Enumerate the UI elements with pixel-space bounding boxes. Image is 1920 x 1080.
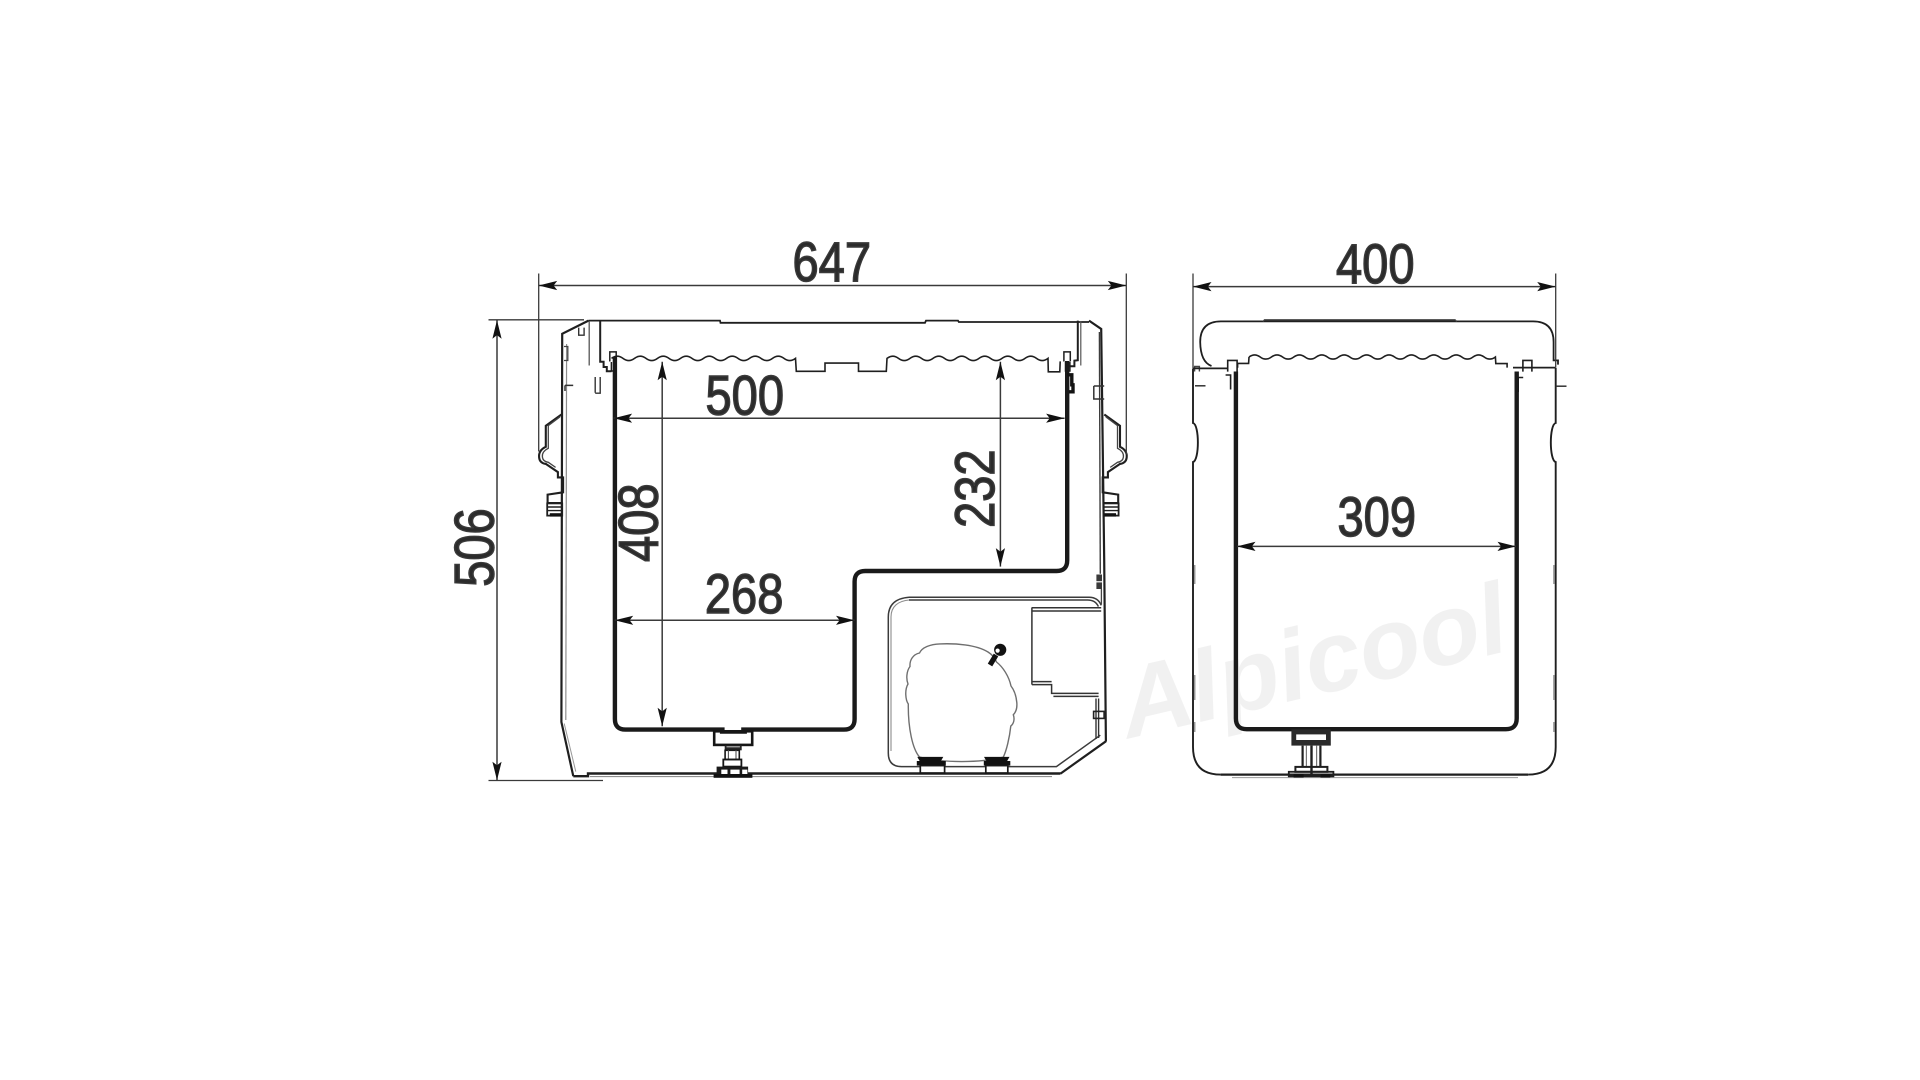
svg-text:400: 400: [1336, 232, 1415, 295]
svg-text:232: 232: [943, 449, 1006, 528]
svg-text:408: 408: [606, 484, 669, 563]
svg-text:268: 268: [705, 562, 784, 625]
svg-text:506: 506: [443, 508, 506, 587]
svg-text:500: 500: [706, 364, 785, 427]
svg-text:309: 309: [1338, 485, 1417, 548]
svg-text:647: 647: [793, 230, 872, 293]
